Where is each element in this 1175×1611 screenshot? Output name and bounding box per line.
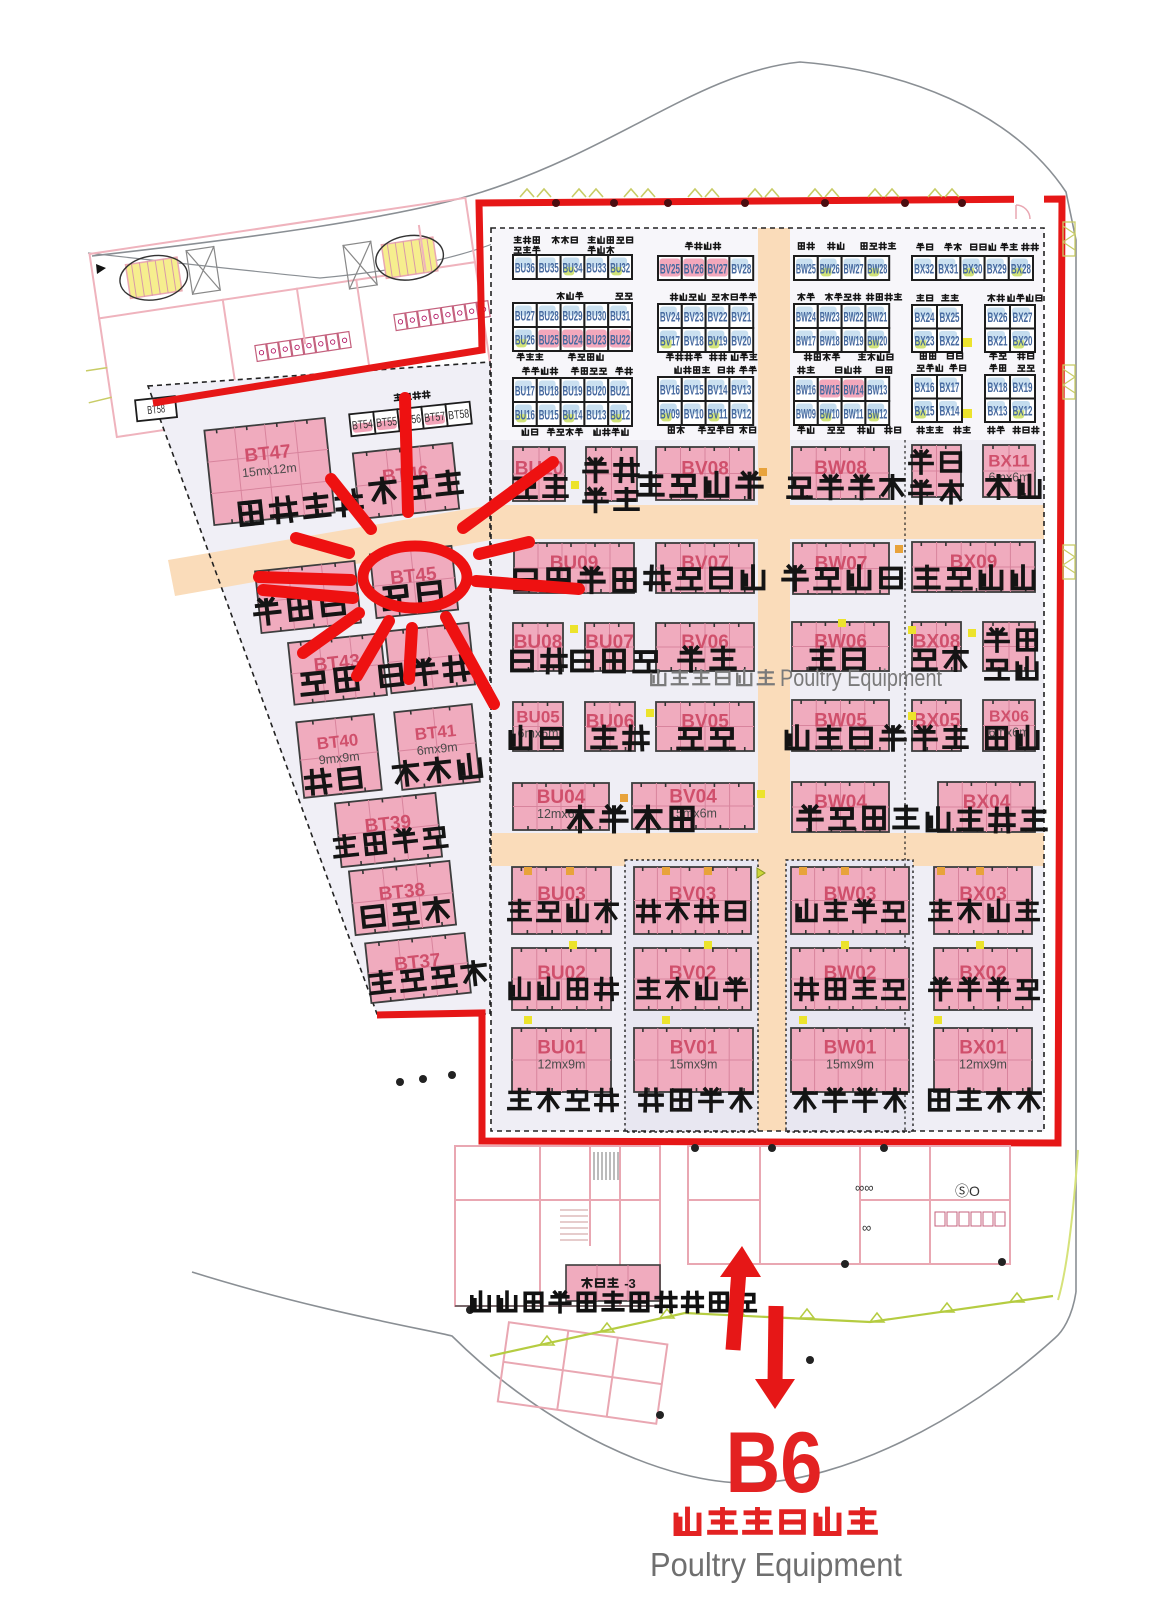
svg-text:15mx9m: 15mx9m xyxy=(826,1057,874,1071)
svg-text:BV09: BV09 xyxy=(660,406,680,421)
svg-text:BV27: BV27 xyxy=(708,261,728,276)
svg-text:BX27: BX27 xyxy=(1013,310,1033,325)
svg-text:BU27: BU27 xyxy=(515,308,535,323)
svg-text:BW17: BW17 xyxy=(796,333,816,348)
svg-text:BW19: BW19 xyxy=(844,333,864,348)
svg-text:BW24: BW24 xyxy=(796,309,816,324)
svg-text:BU30: BU30 xyxy=(586,308,606,323)
svg-text:BV01: BV01 xyxy=(670,1037,718,1058)
svg-text:BV11: BV11 xyxy=(708,406,728,421)
svg-text:BX14: BX14 xyxy=(940,403,960,418)
svg-text:BU31: BU31 xyxy=(610,308,630,323)
svg-text:BV21: BV21 xyxy=(731,309,751,324)
svg-text:BU34: BU34 xyxy=(563,260,583,275)
svg-text:BU22: BU22 xyxy=(610,332,630,347)
svg-text:BU18: BU18 xyxy=(539,383,559,398)
svg-text:BV25: BV25 xyxy=(660,261,680,276)
svg-text:BX12: BX12 xyxy=(1013,403,1033,418)
svg-text:BV15: BV15 xyxy=(684,382,704,397)
svg-text:BW23: BW23 xyxy=(820,309,840,324)
svg-text:BX23: BX23 xyxy=(915,333,935,348)
svg-text:BX32: BX32 xyxy=(914,261,934,276)
svg-text:BU33: BU33 xyxy=(586,260,606,275)
svg-text:BU20: BU20 xyxy=(586,383,606,398)
svg-text:BW22: BW22 xyxy=(844,309,864,324)
svg-text:BT57: BT57 xyxy=(423,409,446,425)
svg-text:BU23: BU23 xyxy=(586,332,606,347)
svg-text:BX24: BX24 xyxy=(915,310,935,325)
svg-text:BV19: BV19 xyxy=(708,333,728,348)
svg-text:BV22: BV22 xyxy=(708,309,728,324)
svg-text:BU14: BU14 xyxy=(563,407,583,422)
svg-text:BV16: BV16 xyxy=(660,382,680,397)
svg-text:BX17: BX17 xyxy=(940,380,960,395)
svg-text:BX18: BX18 xyxy=(988,380,1008,395)
svg-text:BX15: BX15 xyxy=(915,403,935,418)
svg-text:BW16: BW16 xyxy=(796,382,816,397)
svg-text:BV14: BV14 xyxy=(708,382,728,397)
svg-text:BU25: BU25 xyxy=(539,332,559,347)
svg-text:BW28: BW28 xyxy=(867,261,887,276)
svg-text:BW18: BW18 xyxy=(820,333,840,348)
svg-text:BU05: BU05 xyxy=(516,708,559,727)
svg-text:∞: ∞ xyxy=(862,1220,871,1235)
svg-text:BW25: BW25 xyxy=(796,261,816,276)
svg-text:BX21: BX21 xyxy=(988,333,1008,348)
svg-text:BU24: BU24 xyxy=(563,332,583,347)
svg-text:12mx9m: 12mx9m xyxy=(538,1057,586,1071)
svg-text:BU21: BU21 xyxy=(610,383,630,398)
svg-text:BU32: BU32 xyxy=(610,260,630,275)
svg-text:Poultry Equipment: Poultry Equipment xyxy=(780,665,942,692)
svg-text:BV17: BV17 xyxy=(660,333,680,348)
svg-text:BX06: BX06 xyxy=(989,708,1029,725)
svg-text:BW12: BW12 xyxy=(867,406,887,421)
svg-text:BW27: BW27 xyxy=(844,261,864,276)
svg-text:BW01: BW01 xyxy=(824,1037,877,1058)
svg-text:BX11: BX11 xyxy=(988,452,1030,471)
svg-text:BX13: BX13 xyxy=(988,403,1008,418)
svg-text:BW09: BW09 xyxy=(796,406,816,421)
svg-text:BW14: BW14 xyxy=(844,382,864,397)
svg-text:BX19: BX19 xyxy=(1013,380,1033,395)
svg-text:BU13: BU13 xyxy=(586,407,606,422)
svg-text:BX22: BX22 xyxy=(940,333,960,348)
svg-text:-3: -3 xyxy=(624,1276,636,1291)
svg-text:BX29: BX29 xyxy=(987,261,1007,276)
svg-text:BU15: BU15 xyxy=(539,407,559,422)
svg-text:BU35: BU35 xyxy=(539,260,559,275)
svg-text:BU01: BU01 xyxy=(537,1037,586,1058)
svg-text:BW21: BW21 xyxy=(867,309,887,324)
svg-text:BX26: BX26 xyxy=(988,310,1008,325)
svg-text:BV24: BV24 xyxy=(660,309,680,324)
svg-text:BX16: BX16 xyxy=(915,380,935,395)
svg-text:BV20: BV20 xyxy=(731,333,751,348)
svg-text:BW11: BW11 xyxy=(844,406,864,421)
svg-text:BW10: BW10 xyxy=(820,406,840,421)
svg-text:BV12: BV12 xyxy=(731,406,751,421)
svg-text:BW20: BW20 xyxy=(867,333,887,348)
svg-text:BX20: BX20 xyxy=(1013,333,1033,348)
svg-text:15mx9m: 15mx9m xyxy=(670,1057,718,1071)
svg-text:BX28: BX28 xyxy=(1011,261,1031,276)
svg-text:BV26: BV26 xyxy=(684,261,704,276)
svg-text:B6: B6 xyxy=(726,1415,823,1511)
svg-text:BX31: BX31 xyxy=(938,261,958,276)
svg-text:BX25: BX25 xyxy=(940,310,960,325)
svg-text:BU26: BU26 xyxy=(515,332,535,347)
svg-text:BU28: BU28 xyxy=(539,308,559,323)
svg-text:BU19: BU19 xyxy=(563,383,583,398)
svg-text:BV04: BV04 xyxy=(669,787,717,808)
svg-text:BU17: BU17 xyxy=(515,383,535,398)
svg-text:BW15: BW15 xyxy=(820,382,840,397)
svg-text:ⓈO: ⓈO xyxy=(955,1183,980,1199)
svg-text:BX30: BX30 xyxy=(963,261,983,276)
svg-text:BU29: BU29 xyxy=(563,308,583,323)
svg-text:12mx9m: 12mx9m xyxy=(959,1057,1007,1071)
svg-text:BT54: BT54 xyxy=(351,416,374,432)
svg-text:BU12: BU12 xyxy=(610,407,630,422)
svg-text:BX01: BX01 xyxy=(959,1037,1007,1058)
svg-text:BT55: BT55 xyxy=(375,414,398,430)
svg-text:BV28: BV28 xyxy=(731,261,751,276)
svg-text:BU36: BU36 xyxy=(515,260,535,275)
svg-text:Poultry Equipment: Poultry Equipment xyxy=(650,1546,902,1583)
svg-text:BU16: BU16 xyxy=(515,407,535,422)
svg-text:BT58: BT58 xyxy=(448,406,471,422)
svg-text:BW13: BW13 xyxy=(867,382,887,397)
svg-text:BW26: BW26 xyxy=(820,261,840,276)
svg-text:BV13: BV13 xyxy=(731,382,751,397)
svg-text:BV23: BV23 xyxy=(684,309,704,324)
svg-text:BV18: BV18 xyxy=(684,333,704,348)
svg-text:∞∞: ∞∞ xyxy=(855,1180,874,1195)
svg-text:BV10: BV10 xyxy=(684,406,704,421)
svg-text:6mx6m: 6mx6m xyxy=(989,471,1030,485)
